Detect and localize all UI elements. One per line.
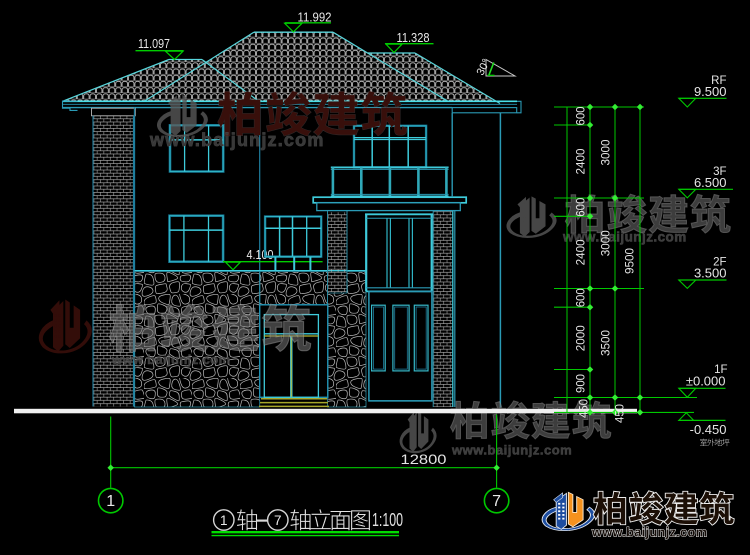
svg-text:450: 450	[615, 404, 627, 423]
svg-text:4.100: 4.100	[247, 248, 274, 262]
svg-text:2400: 2400	[576, 239, 588, 265]
svg-text:3500: 3500	[601, 330, 613, 356]
svg-text:1:100: 1:100	[372, 509, 403, 530]
svg-text:2400: 2400	[576, 149, 588, 175]
svg-text:3.500: 3.500	[694, 266, 727, 281]
svg-text:±0.000: ±0.000	[686, 373, 726, 388]
svg-text:www.baijunjz.com: www.baijunjz.com	[111, 352, 231, 367]
svg-text:12800: 12800	[401, 452, 447, 467]
svg-text:11.328: 11.328	[397, 31, 430, 45]
svg-text:6.500: 6.500	[694, 175, 727, 190]
svg-text:11.097: 11.097	[138, 37, 170, 51]
svg-text:600: 600	[576, 198, 588, 217]
svg-text:600: 600	[576, 288, 588, 307]
svg-text:7: 7	[274, 513, 282, 528]
svg-text:9500: 9500	[625, 248, 637, 274]
svg-text:-0.450: -0.450	[690, 422, 727, 437]
svg-text:3000: 3000	[601, 140, 613, 166]
svg-text:600: 600	[576, 107, 588, 126]
svg-text:www.baijunjz.com: www.baijunjz.com	[451, 443, 572, 458]
svg-text:900: 900	[576, 374, 588, 393]
svg-text:1: 1	[106, 493, 115, 510]
svg-text:www.baijunjz.com: www.baijunjz.com	[591, 525, 707, 540]
svg-text:2000: 2000	[576, 325, 588, 351]
svg-text:1: 1	[220, 513, 228, 528]
svg-text:3000: 3000	[601, 230, 613, 256]
svg-text:450: 450	[579, 399, 591, 418]
svg-text:www.baijunjz.com: www.baijunjz.com	[149, 130, 325, 150]
svg-text:9.500: 9.500	[694, 84, 727, 99]
svg-text:7: 7	[492, 493, 501, 510]
